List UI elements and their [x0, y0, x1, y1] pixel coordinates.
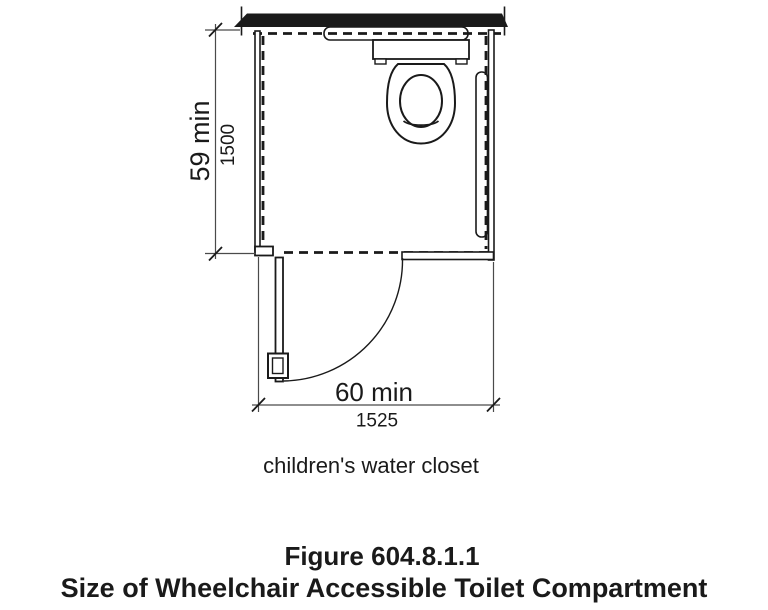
front-partition-wall: [402, 252, 494, 260]
right-partition-wall: [489, 30, 495, 260]
figure-title: Size of Wheelchair Accessible Toilet Com…: [61, 573, 708, 603]
width-dimension-label: 60 min: [335, 377, 413, 407]
width-dimension: 60 min 1525: [252, 257, 500, 432]
figure-number: Figure 604.8.1.1: [284, 541, 479, 571]
door-swing-arc: [284, 258, 403, 381]
door-hinge-wall-stub: [255, 247, 273, 256]
toilet-tank-right-tab: [456, 59, 467, 64]
rear-wall-bar: [234, 14, 508, 28]
figure-page: 59 min 1500 60 min 1525 children's water…: [0, 0, 768, 610]
width-dimension-metric: 1525: [356, 411, 398, 432]
toilet-seat-opening: [400, 75, 442, 127]
depth-dimension: 59 min 1500: [185, 23, 256, 261]
depth-dimension-metric: 1500: [218, 124, 239, 166]
toilet-tank: [373, 40, 469, 59]
toilet: [373, 40, 469, 144]
toilet-compartment-plan-diagram: 59 min 1500 60 min 1525 children's water…: [0, 0, 768, 610]
toilet-tank-left-tab: [375, 59, 386, 64]
depth-dimension-label: 59 min: [185, 100, 215, 181]
diagram-caption: children's water closet: [263, 453, 479, 478]
door: [268, 258, 403, 382]
left-partition-wall: [255, 31, 260, 250]
door-latch-inner: [273, 358, 284, 374]
compartment-boundary-dashed: [253, 34, 501, 253]
